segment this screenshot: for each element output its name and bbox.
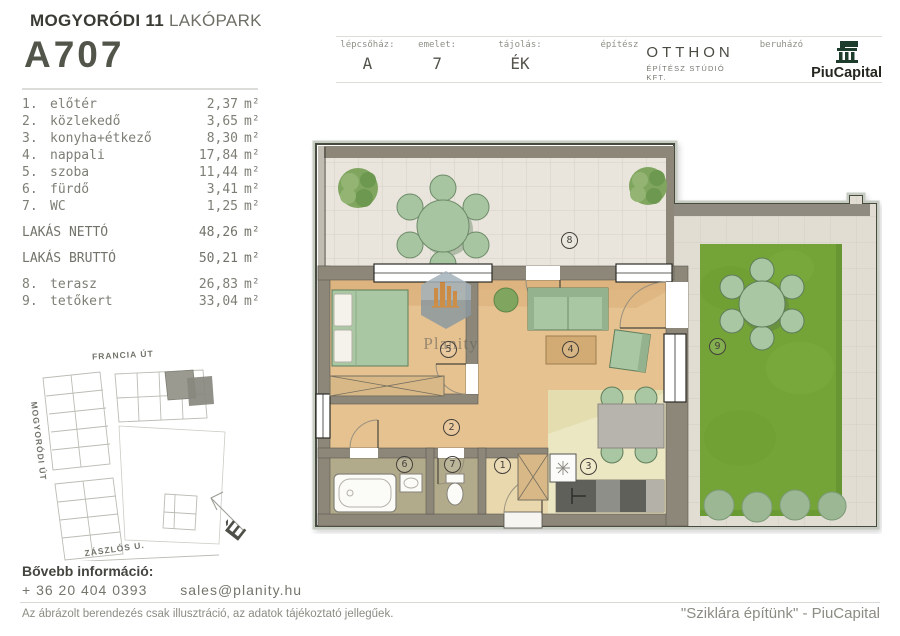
room-row-9: 9.tetőkert33,04m² <box>22 294 268 311</box>
washing-machine <box>550 454 576 482</box>
field-orientation-value: ÉK <box>510 54 529 73</box>
sofa <box>528 288 608 330</box>
kitchen-counter <box>556 480 664 512</box>
room-badge-8: 8 <box>561 232 578 249</box>
room-row-1: 1.előtér2,37m² <box>22 97 268 114</box>
street-label-francia: FRANCIA ÚT <box>92 347 154 361</box>
total-net-row: LAKÁS NETTÓ48,26m² <box>22 225 268 242</box>
email-link[interactable]: sales@planity.hu <box>180 582 302 598</box>
sink <box>400 474 422 492</box>
terrace-plant-right <box>629 167 667 205</box>
entry-wardrobe <box>518 454 548 500</box>
terrace-plant-left <box>338 168 378 208</box>
developer-name: PiuCapital <box>811 65 882 81</box>
room-badge-5: 5 <box>440 341 457 358</box>
room-row-4: 4.nappali17,84m² <box>22 148 268 165</box>
developer-block: beruházó PiuCapital <box>760 37 882 82</box>
total-gross-row: LAKÁS BRUTTÓ50,21m² <box>22 251 268 268</box>
wardrobe <box>330 376 444 396</box>
footer-disclaimer: Az ábrázolt berendezés csak illusztráció… <box>22 608 393 620</box>
architect-block: építész OTTHON ÉPÍTÉSZ STÚDIÓ KFT. <box>600 37 733 82</box>
room-badge-4: 4 <box>562 341 579 358</box>
footer-info-title: Bővebb információ: <box>22 563 153 579</box>
plant <box>494 288 518 312</box>
bathtub <box>334 474 396 512</box>
header-info-band: lépcsőház: A emelet: 7 tájolás: ÉK építé… <box>336 36 882 83</box>
compass-north-arrow: É <box>211 492 252 546</box>
footer-divider <box>20 602 880 603</box>
room-row-8: 8.terasz26,83m² <box>22 277 268 294</box>
project-title-light: LAKÓPARK <box>169 11 262 30</box>
field-orientation-label: tájolás: <box>498 40 541 50</box>
toilet <box>446 474 464 505</box>
piucapital-logo-icon <box>832 40 862 64</box>
room-row-6: 6.fürdő3,41m² <box>22 182 268 199</box>
room-badge-3: 3 <box>580 458 597 475</box>
room-badge-2: 2 <box>443 419 460 436</box>
unit-id: A707 <box>24 34 124 76</box>
phone-number[interactable]: + 36 20 404 0393 <box>22 582 147 598</box>
unit-underline <box>22 88 258 90</box>
compass-letter: É <box>220 516 252 546</box>
room-badge-9: 9 <box>709 338 726 355</box>
room-row-2: 2.közlekedő3,65m² <box>22 114 268 131</box>
architect-name: OTTHON <box>646 44 733 61</box>
developer-label: beruházó <box>760 40 803 82</box>
field-orientation: tájolás: ÉK <box>476 37 565 82</box>
project-title-bold: MOGYORÓDI 11 <box>30 11 164 30</box>
field-floor-value: 7 <box>432 54 442 73</box>
room-badge-1: 1 <box>494 457 511 474</box>
site-map: FRANCIA ÚT MOGYORÓDI ÚT ZÁSZLÓS U. É <box>15 346 265 561</box>
footer-slogan: "Sziklára építünk" - PiuCapital <box>681 605 880 622</box>
field-staircase-label: lépcsőház: <box>340 40 394 50</box>
room-row-5: 5.szoba11,44m² <box>22 165 268 182</box>
terrace-floor <box>318 146 674 268</box>
room-row-7: 7.WC1,25m² <box>22 199 268 216</box>
bed <box>332 290 408 366</box>
floor-plan: Planity 1 2 3 4 5 6 7 8 9 <box>310 138 882 534</box>
room-row-3: 3.konyha+étkező8,30m² <box>22 131 268 148</box>
room-badge-6: 6 <box>396 456 413 473</box>
architect-label: építész <box>600 40 638 82</box>
armchair <box>610 330 651 373</box>
room-list: 1.előtér2,37m² 2.közlekedő3,65m² 3.konyh… <box>22 97 268 311</box>
room-badge-7: 7 <box>444 456 461 473</box>
architect-subtitle: ÉPÍTÉSZ STÚDIÓ KFT. <box>646 64 733 82</box>
field-staircase: lépcsőház: A <box>336 37 399 82</box>
field-floor: emelet: 7 <box>399 37 476 82</box>
footer-contacts: + 36 20 404 0393 sales@planity.hu <box>22 582 330 598</box>
field-staircase-value: A <box>363 54 373 73</box>
project-title: MOGYORÓDI 11 LAKÓPARK <box>30 11 262 31</box>
field-floor-label: emelet: <box>418 40 456 50</box>
